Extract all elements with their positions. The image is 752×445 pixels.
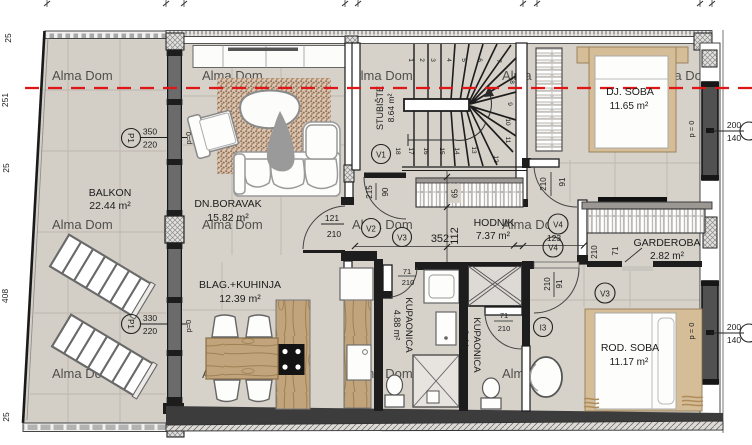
svg-text:DJ. SOBA: DJ. SOBA — [606, 86, 654, 98]
svg-text:8: 8 — [508, 80, 515, 84]
svg-text:8.64 m²: 8.64 m² — [386, 93, 396, 122]
svg-text:Alma Dom: Alma Dom — [352, 68, 413, 83]
svg-text:5: 5 — [460, 58, 467, 62]
svg-text:6: 6 — [476, 58, 483, 62]
svg-text:210: 210 — [402, 278, 415, 287]
svg-text:11: 11 — [504, 137, 511, 144]
svg-text:215: 215 — [365, 185, 374, 199]
svg-text:9: 9 — [506, 102, 513, 106]
svg-text:25: 25 — [3, 33, 13, 43]
svg-text:ROD. SOBA: ROD. SOBA — [601, 342, 659, 354]
svg-text:91: 91 — [555, 279, 564, 288]
svg-text:P1: P1 — [126, 133, 135, 143]
svg-text:11.65 m²: 11.65 m² — [610, 101, 649, 112]
svg-text:3: 3 — [429, 58, 436, 62]
svg-text:GARDEROBA: GARDEROBA — [633, 237, 700, 249]
svg-text:65: 65 — [451, 189, 460, 198]
svg-text:71: 71 — [611, 246, 620, 255]
svg-text:3.44 m²: 3.44 m² — [460, 330, 470, 361]
svg-text:KUPAONICA: KUPAONICA — [471, 317, 482, 373]
svg-text:16: 16 — [422, 147, 429, 155]
svg-text:12.39 m²: 12.39 m² — [219, 293, 261, 305]
svg-text:2: 2 — [418, 58, 425, 62]
svg-text:V2: V2 — [366, 225, 376, 234]
svg-text:25: 25 — [1, 412, 11, 422]
svg-text:11.17 m²: 11.17 m² — [610, 357, 649, 368]
svg-text:7: 7 — [495, 59, 502, 63]
svg-text:251: 251 — [0, 93, 10, 107]
svg-text:p = 0: p = 0 — [687, 121, 696, 138]
svg-text:7.37 m²: 7.37 m² — [476, 231, 511, 242]
svg-text:V1: V1 — [376, 151, 386, 160]
svg-text:210: 210 — [539, 177, 548, 191]
svg-text:352: 352 — [431, 233, 449, 245]
svg-text:13: 13 — [470, 146, 477, 154]
svg-text:BALKON: BALKON — [89, 187, 132, 199]
svg-text:V4: V4 — [553, 221, 563, 230]
svg-text:210: 210 — [327, 229, 341, 239]
svg-text:p = 0: p = 0 — [687, 323, 696, 340]
svg-text:22.44 m²: 22.44 m² — [89, 200, 131, 212]
svg-text:90: 90 — [381, 187, 390, 196]
svg-text:71: 71 — [500, 311, 508, 320]
svg-text:15.82 m²: 15.82 m² — [207, 212, 249, 224]
svg-text:200: 200 — [727, 322, 741, 332]
svg-text:121: 121 — [325, 213, 339, 223]
svg-text:200: 200 — [727, 120, 741, 130]
svg-text:140: 140 — [727, 133, 741, 143]
svg-text:Alma Dom: Alma Dom — [52, 217, 113, 232]
svg-text:15: 15 — [438, 147, 445, 155]
svg-text:14: 14 — [453, 147, 460, 155]
svg-text:210: 210 — [543, 277, 552, 291]
svg-text:4: 4 — [445, 58, 452, 62]
svg-text:220: 220 — [143, 326, 157, 336]
svg-text:71: 71 — [403, 267, 411, 276]
svg-text:210: 210 — [498, 324, 511, 333]
svg-text:Alma Dom: Alma Dom — [52, 68, 113, 83]
svg-text:210: 210 — [590, 245, 599, 259]
svg-text:4.88 m²: 4.88 m² — [392, 310, 402, 341]
svg-text:2.82 m²: 2.82 m² — [650, 251, 685, 262]
svg-text:p=0: p=0 — [184, 132, 193, 145]
svg-text:KUPAONICA: KUPAONICA — [403, 297, 414, 353]
svg-text:1: 1 — [407, 58, 414, 62]
svg-text:V3: V3 — [397, 234, 407, 243]
svg-text:BLAG.+KUHINJA: BLAG.+KUHINJA — [199, 279, 281, 291]
svg-text:STUBIŠTE: STUBIŠTE — [375, 86, 385, 130]
svg-text:91: 91 — [558, 177, 567, 186]
svg-text:350: 350 — [143, 127, 157, 137]
svg-text:330: 330 — [143, 313, 157, 323]
svg-text:408: 408 — [0, 289, 10, 303]
svg-text:p=0: p=0 — [184, 320, 193, 333]
svg-text:V3: V3 — [600, 290, 610, 299]
svg-text:140: 140 — [727, 335, 741, 345]
svg-text:I3: I3 — [540, 324, 547, 333]
svg-text:17: 17 — [407, 147, 414, 155]
svg-text:220: 220 — [143, 140, 157, 150]
svg-text:DN.BORAVAK: DN.BORAVAK — [194, 198, 261, 210]
svg-text:10: 10 — [504, 118, 511, 126]
svg-text:18: 18 — [394, 147, 401, 155]
svg-text:V4: V4 — [548, 244, 558, 253]
svg-text:112: 112 — [449, 227, 461, 245]
svg-text:25: 25 — [1, 163, 11, 173]
svg-text:HODNIK: HODNIK — [474, 217, 515, 229]
svg-text:P1: P1 — [126, 319, 135, 329]
svg-text:12: 12 — [492, 155, 499, 163]
